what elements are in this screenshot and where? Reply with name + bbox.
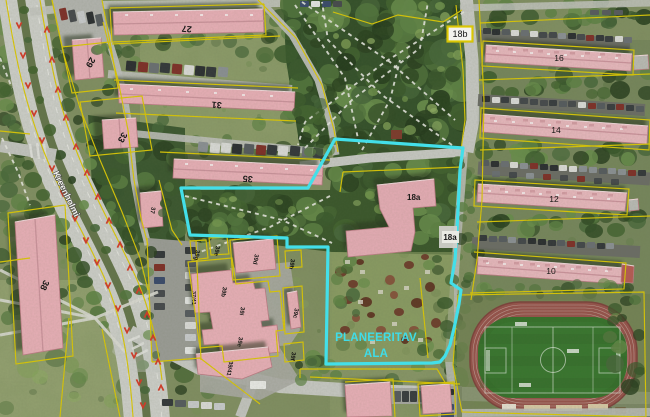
- svg-text:ALA: ALA: [364, 348, 388, 360]
- svg-text:PLANEERITAV: PLANEERITAV: [335, 332, 417, 344]
- svg-text:18a: 18a: [443, 233, 457, 242]
- svg-text:18b: 18b: [452, 29, 467, 39]
